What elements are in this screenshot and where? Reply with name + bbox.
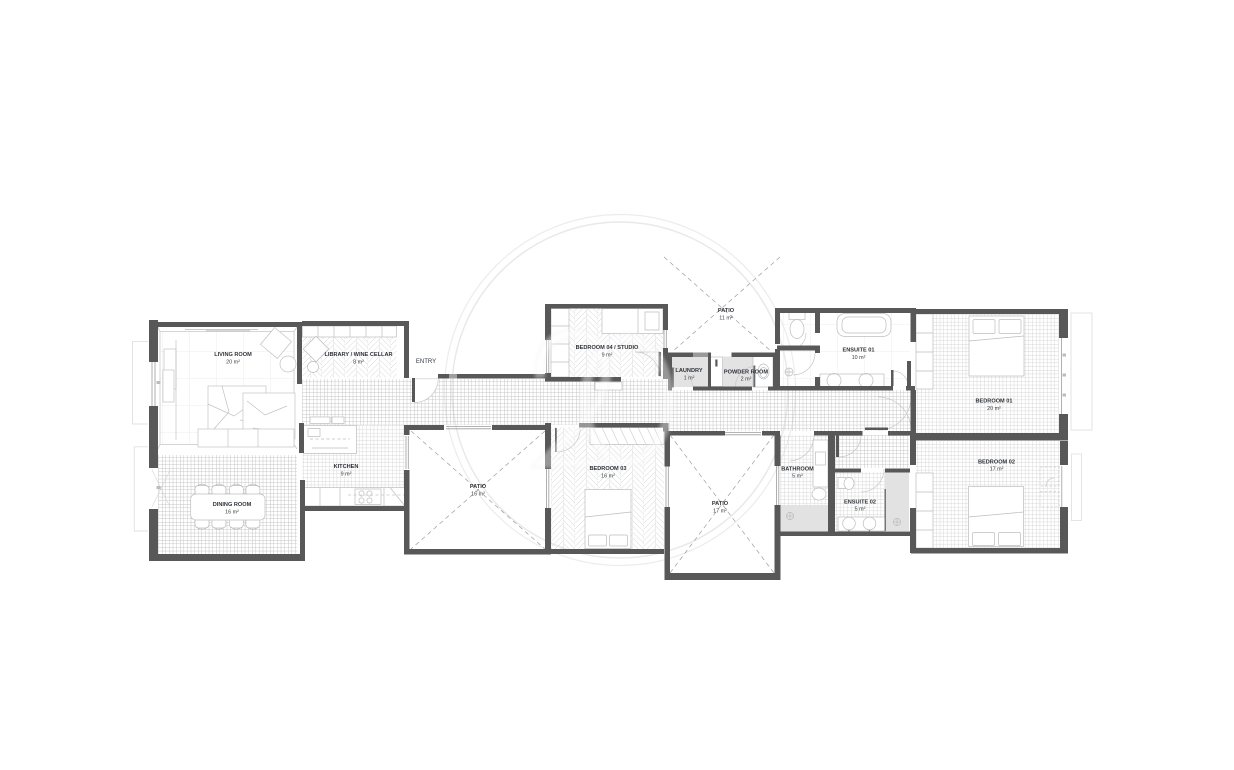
- svg-text:ENSUITE 01: ENSUITE 01: [842, 348, 874, 354]
- svg-text:LIBRARY / WINE CELLAR: LIBRARY / WINE CELLAR: [324, 352, 392, 358]
- svg-text:PATIO: PATIO: [470, 484, 487, 490]
- svg-text:16 m²: 16 m²: [601, 474, 615, 480]
- svg-text:POWDER ROOM: POWDER ROOM: [724, 370, 768, 376]
- svg-text:16 m²: 16 m²: [225, 510, 239, 516]
- svg-text:ENTRY: ENTRY: [416, 359, 436, 365]
- svg-text:BATHROOM: BATHROOM: [781, 467, 814, 473]
- svg-text:17 m²: 17 m²: [713, 509, 727, 515]
- svg-text:BEDROOM 03: BEDROOM 03: [590, 466, 627, 472]
- svg-text:LIVING ROOM: LIVING ROOM: [214, 352, 252, 358]
- svg-text:ENSUITE 02: ENSUITE 02: [844, 500, 876, 506]
- svg-text:PATIO: PATIO: [712, 501, 729, 507]
- svg-text:20 m²: 20 m²: [226, 360, 240, 366]
- svg-text:9 m²: 9 m²: [602, 353, 613, 359]
- svg-text:1 m²: 1 m²: [684, 376, 695, 382]
- svg-text:16 m²: 16 m²: [471, 492, 485, 498]
- svg-text:8 m²: 8 m²: [353, 360, 364, 366]
- svg-text:LAUNDRY: LAUNDRY: [675, 368, 702, 374]
- svg-text:PATIO: PATIO: [718, 308, 735, 314]
- svg-text:BEDROOM 01: BEDROOM 01: [976, 399, 1013, 405]
- svg-text:2 m²: 2 m²: [741, 377, 752, 383]
- svg-text:20 m²: 20 m²: [987, 406, 1001, 412]
- svg-text:BEDROOM 04 / STUDIO: BEDROOM 04 / STUDIO: [576, 345, 639, 351]
- svg-text:9 m²: 9 m²: [341, 472, 352, 478]
- svg-text:17 m²: 17 m²: [990, 467, 1004, 473]
- svg-text:11 m²: 11 m²: [719, 316, 733, 322]
- svg-text:DINING ROOM: DINING ROOM: [213, 502, 252, 508]
- svg-text:5 m²: 5 m²: [792, 474, 803, 480]
- svg-text:KITCHEN: KITCHEN: [334, 464, 359, 470]
- svg-text:5 m²: 5 m²: [855, 507, 866, 513]
- svg-text:BEDROOM 02: BEDROOM 02: [978, 460, 1015, 466]
- svg-text:10 m²: 10 m²: [852, 355, 866, 361]
